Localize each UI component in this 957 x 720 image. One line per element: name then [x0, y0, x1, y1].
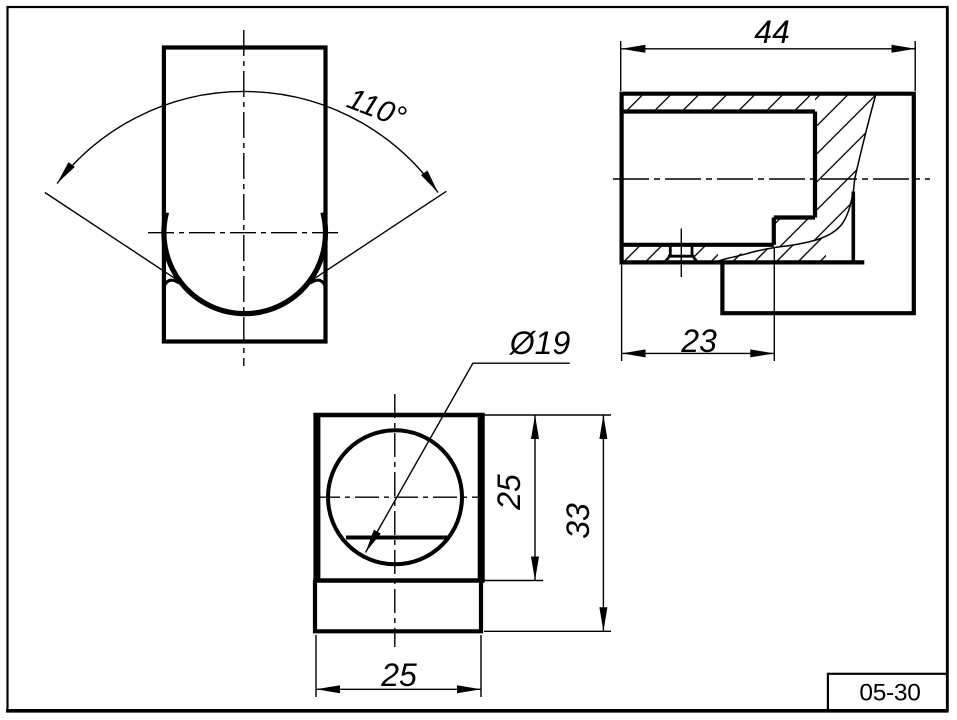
svg-text:33: 33 — [560, 503, 596, 539]
svg-text:05-30: 05-30 — [859, 680, 920, 707]
svg-text:44: 44 — [754, 14, 790, 50]
svg-text:110°: 110° — [343, 82, 411, 134]
svg-text:25: 25 — [491, 474, 527, 511]
svg-text:23: 23 — [680, 323, 717, 359]
svg-text:Ø19: Ø19 — [509, 325, 571, 361]
svg-text:25: 25 — [380, 657, 417, 693]
